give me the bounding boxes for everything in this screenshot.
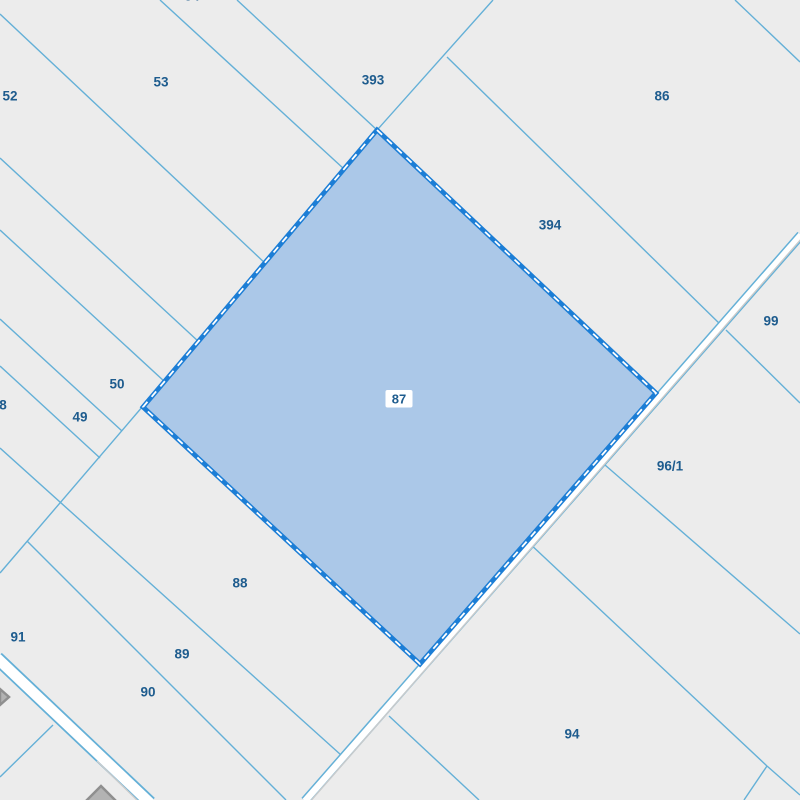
parcel-label-90: 90 — [140, 685, 155, 700]
parcel-label-393: 393 — [362, 73, 385, 88]
parcel-label-8: 8 — [0, 398, 7, 413]
parcel-label-88: 88 — [232, 576, 248, 591]
parcel-label-99: 99 — [763, 314, 778, 329]
parcel-label-50: 50 — [109, 377, 124, 392]
parcel-label-91: 91 — [10, 630, 26, 645]
parcel-label-49: 49 — [72, 410, 87, 425]
parcel-label-94: 94 — [564, 727, 580, 742]
parcel-label-87: 87 — [392, 392, 406, 407]
parcel-label-52: 52 — [2, 89, 17, 104]
parcel-label-86: 86 — [654, 89, 670, 104]
cadastral-map-view[interactable]: 52535439386394995049896/1889189909487 — [0, 0, 800, 800]
parcel-label-394: 394 — [539, 218, 562, 233]
parcel-label-96-1: 96/1 — [657, 459, 684, 474]
parcel-label-89: 89 — [174, 647, 189, 662]
parcel-label-54: 54 — [184, 0, 200, 4]
cadastral-map-canvas[interactable]: 52535439386394995049896/1889189909487 — [0, 0, 800, 800]
parcel-label-53: 53 — [153, 75, 169, 90]
